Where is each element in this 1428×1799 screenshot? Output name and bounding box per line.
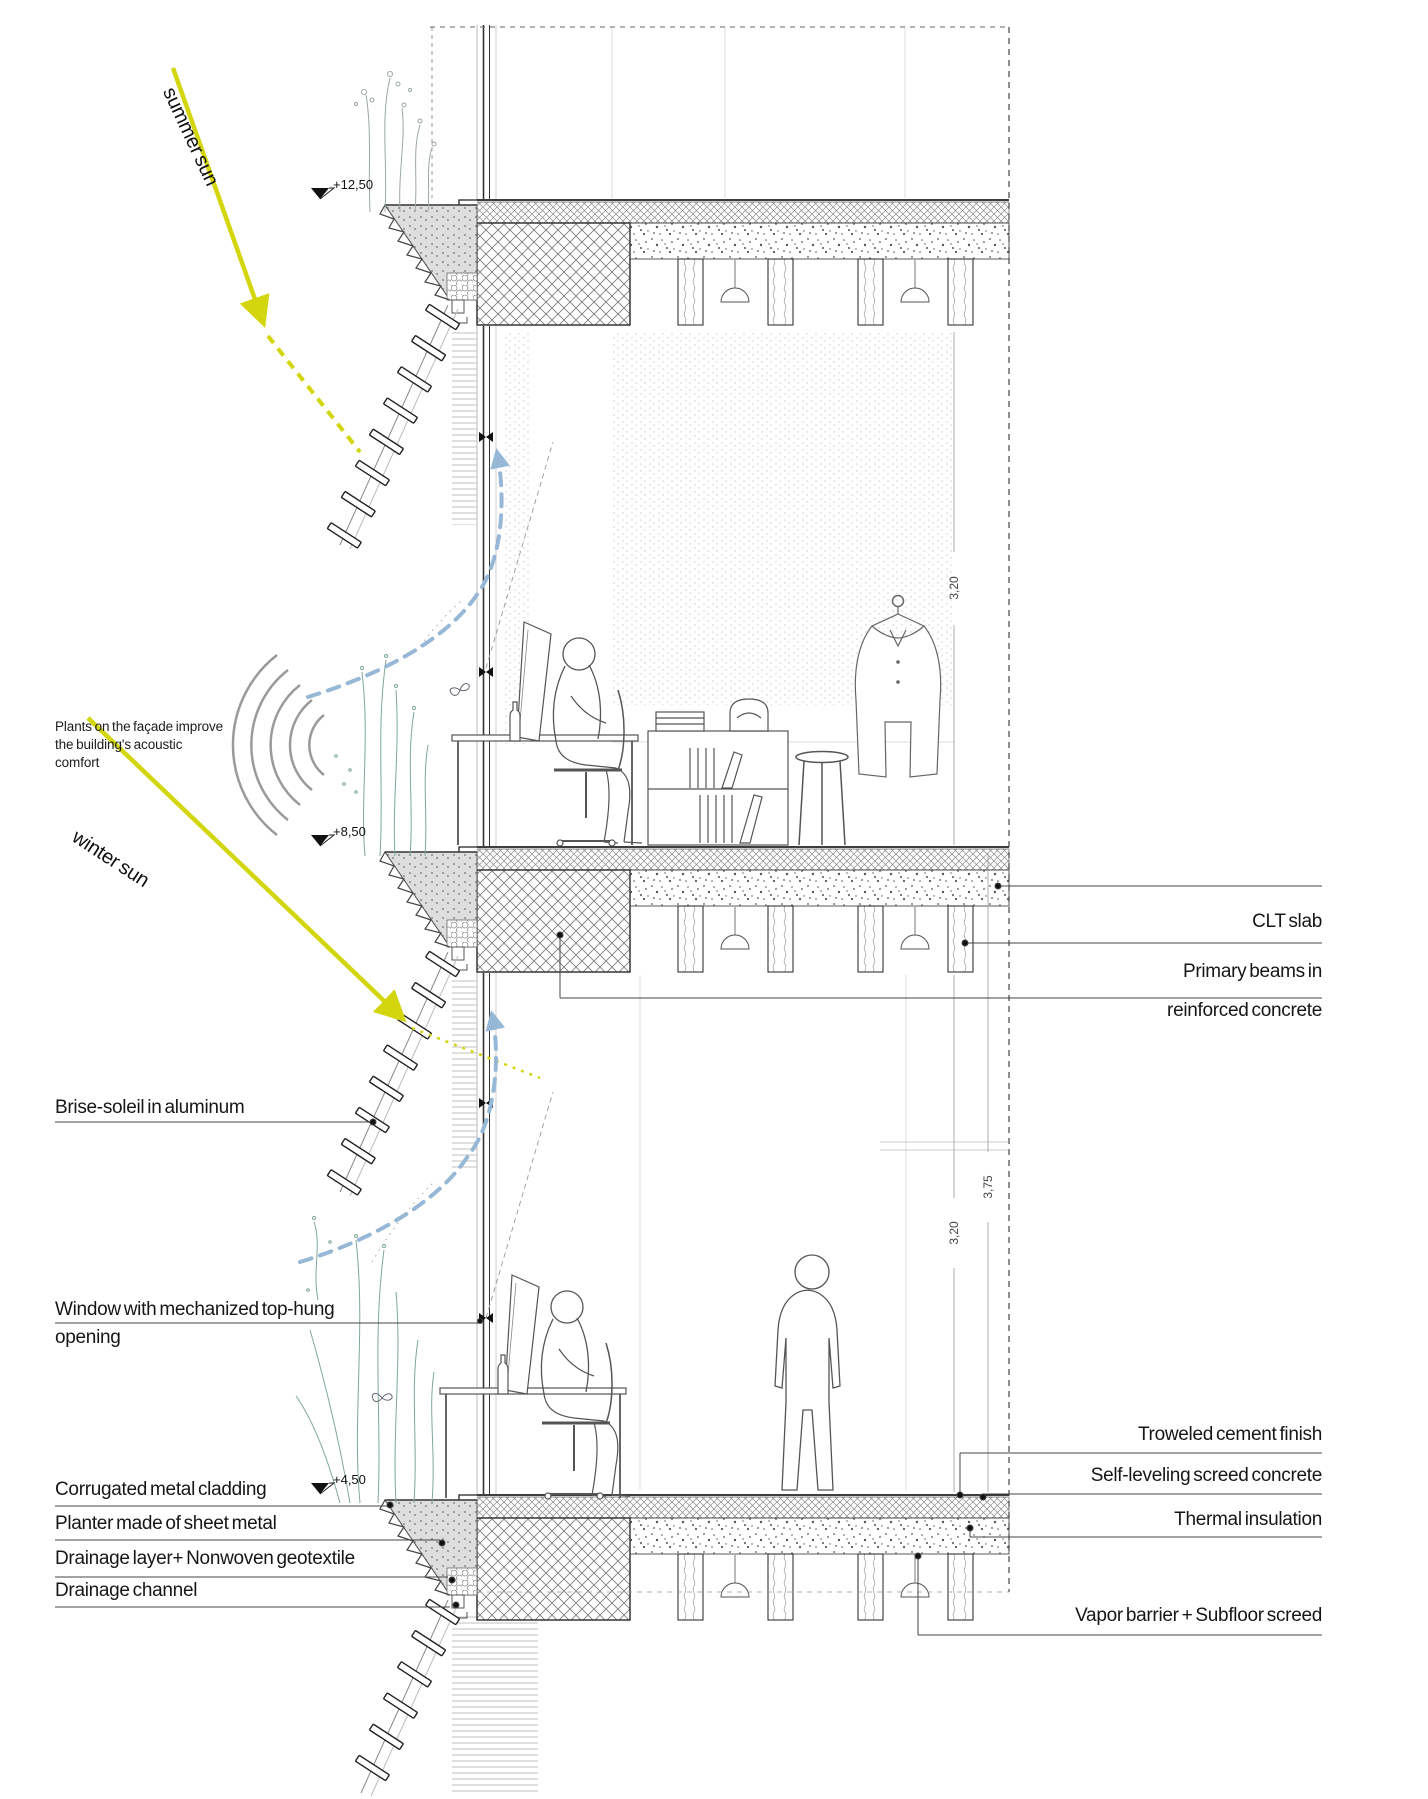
brise-soleil-upper (327, 304, 459, 549)
level-middle: +8,50 (333, 824, 366, 839)
planter-label: Planter made of sheet metal (55, 1514, 277, 1534)
floor-slab-middle (459, 846, 1009, 973)
primary-beams-label-line2: reinforced concrete (1167, 1001, 1322, 1021)
summer-sun-ray (173, 68, 360, 452)
note-line: comfort (55, 754, 223, 772)
brise-soleil-lower (355, 1599, 459, 1796)
corrugated-cladding-label: Corrugated metal cladding (55, 1480, 266, 1500)
self-leveling-screed-label: Self-leveling screed concrete (1091, 1466, 1322, 1486)
architectural-section-diagram: 3,20 3,75 3,20 +12,50 +8,50 +4,50 summer… (0, 0, 1428, 1799)
window-label-line2: opening (55, 1328, 121, 1348)
level-upper: +12,50 (333, 177, 373, 192)
dim-upper-floor: 3,20 (947, 576, 961, 600)
dim-lower-floor: 3,20 (947, 1221, 961, 1245)
brise-soleil-middle (327, 951, 459, 1196)
dim-lower-floor-total: 3,75 (981, 1175, 995, 1199)
lower-workstation (440, 1275, 630, 1499)
drainage-channel-label: Drainage channel (55, 1581, 197, 1601)
plants-acoustic-note: Plants on the façade improve the buildin… (55, 718, 223, 772)
window-label-line1: Window with mechanized top-hung (55, 1300, 334, 1320)
clt-slab-label: CLT slab (1252, 912, 1322, 932)
level-lower: +4,50 (333, 1472, 366, 1487)
note-line: Plants on the façade improve (55, 718, 223, 736)
floor-slab-upper (459, 199, 1009, 326)
standing-person (775, 1255, 840, 1490)
acoustic-waves (233, 655, 324, 835)
brise-soleil-label: Brise-soleil in aluminum (55, 1098, 244, 1118)
shelf-unit (648, 699, 788, 845)
vapor-barrier-label: Vapor barrier + Subfloor screed (1075, 1606, 1322, 1626)
stool (796, 752, 848, 846)
drainage-layer-label: Drainage layer+ Nonwoven geotextile (55, 1549, 355, 1569)
note-line: the building's acoustic (55, 736, 223, 754)
troweled-cement-label: Troweled cement finish (1138, 1425, 1322, 1445)
floor-slab-lower (459, 1494, 1009, 1621)
plants-bottom (296, 1217, 434, 1504)
primary-beams-label-line1: Primary beams in (1183, 962, 1322, 982)
thermal-insulation-label: Thermal insulation (1174, 1510, 1322, 1530)
level-markers: +12,50 +8,50 +4,50 (311, 177, 373, 1494)
